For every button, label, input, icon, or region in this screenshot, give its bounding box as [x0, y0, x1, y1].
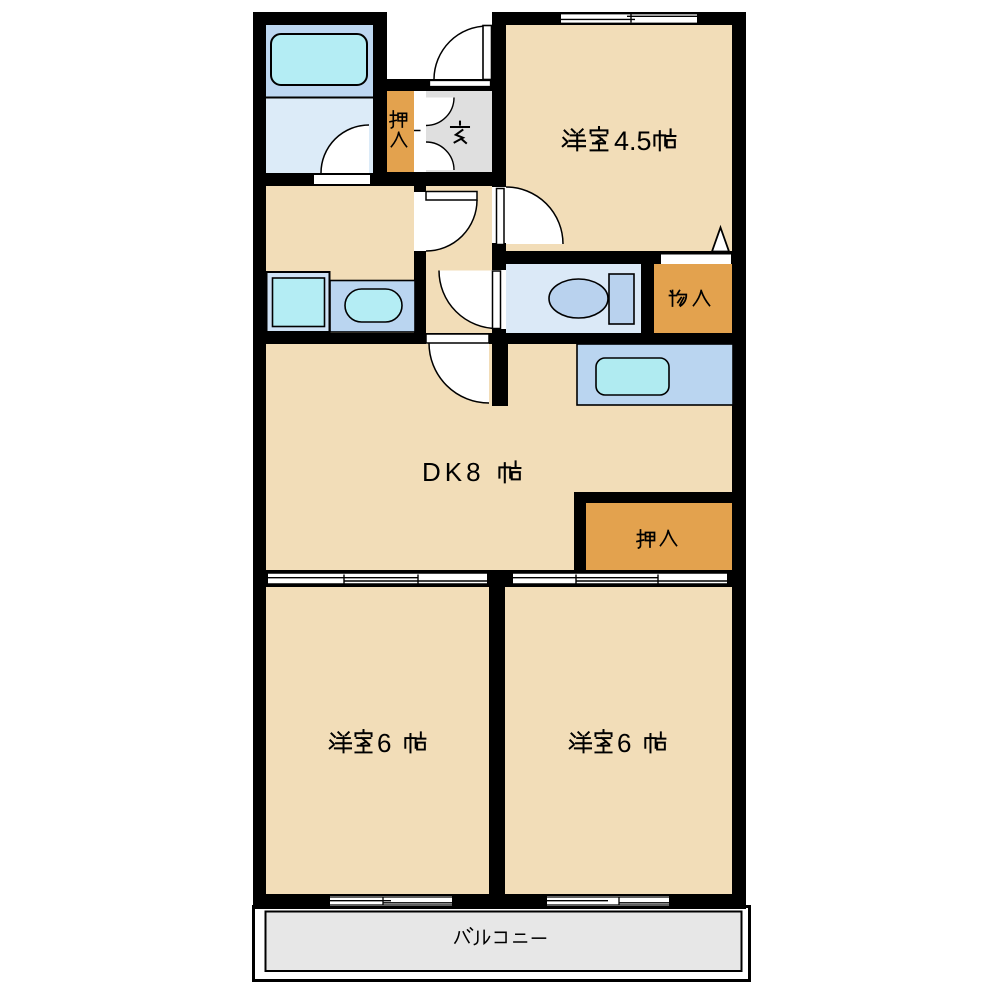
svg-text:6: 6 — [377, 728, 391, 758]
svg-text:6: 6 — [617, 728, 631, 758]
svg-text:4.5: 4.5 — [614, 126, 652, 156]
svg-text:DK8: DK8 — [422, 457, 485, 487]
